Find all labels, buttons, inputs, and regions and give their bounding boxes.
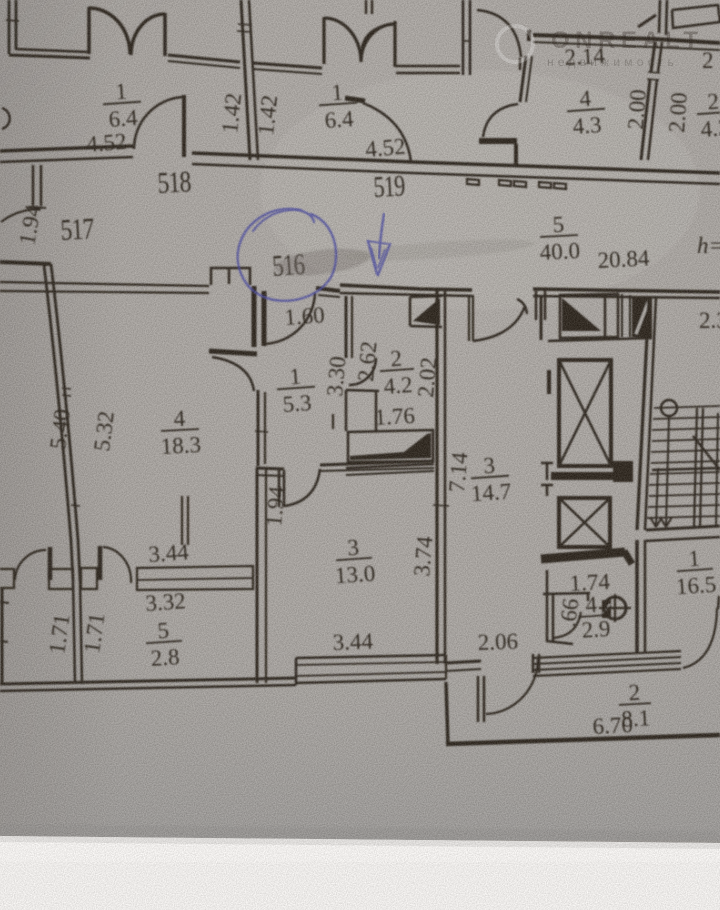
svg-text:h=2: h=2 [697,233,720,258]
svg-text:ONREALT: ONREALT [551,27,704,54]
svg-text:3.32: 3.32 [145,588,187,616]
svg-text:4: 4 [585,592,599,618]
svg-text:3.44: 3.44 [148,539,190,567]
svg-text:1.42: 1.42 [253,94,282,137]
svg-text:2: 2 [707,89,720,115]
svg-text:1.42: 1.42 [217,92,246,135]
svg-text:4: 4 [579,86,593,112]
svg-text:2.62: 2.62 [353,340,381,382]
svg-text:2.06: 2.06 [477,629,518,655]
svg-text:7.14: 7.14 [444,451,472,494]
svg-text:3.74: 3.74 [409,535,437,578]
svg-text:4.3: 4.3 [700,115,720,142]
svg-text:5.3: 5.3 [282,390,312,417]
svg-text:1: 1 [331,80,344,106]
svg-text:6.70: 6.70 [592,712,634,739]
svg-text:14.7: 14.7 [470,479,512,507]
svg-text:5.40: 5.40 [45,408,75,451]
svg-text:4.3: 4.3 [572,112,602,139]
svg-text:2: 2 [628,680,641,706]
svg-text:.66: .66 [555,597,583,629]
svg-text:2.00: 2.00 [664,91,692,133]
svg-text:1.76: 1.76 [374,403,416,430]
svg-text:1: 1 [688,546,701,572]
svg-text:20.84: 20.84 [597,245,650,273]
svg-text:1: 1 [289,364,302,390]
svg-text:2: 2 [702,48,714,73]
svg-text:2.00: 2.00 [623,88,651,130]
svg-text:2: 2 [390,346,403,372]
svg-text:2.02: 2.02 [413,356,441,398]
svg-text:5: 5 [552,212,565,238]
svg-text:недвижимость: недвижимость [547,55,678,69]
svg-text:517: 517 [60,212,95,247]
svg-text:40.0: 40.0 [539,238,581,265]
svg-text:1.60: 1.60 [284,302,326,330]
svg-text:518: 518 [157,165,192,200]
svg-text:6.4: 6.4 [324,106,355,133]
svg-text:2.8: 2.8 [150,644,180,671]
svg-text:18.3: 18.3 [160,432,202,459]
svg-text:4.52: 4.52 [85,129,127,157]
svg-text:2.9: 2.9 [581,616,611,643]
svg-text:3.44: 3.44 [332,629,374,655]
svg-text:1.94: 1.94 [261,485,289,528]
svg-text:4.2: 4.2 [383,372,413,399]
svg-text:5.32: 5.32 [89,410,119,453]
svg-text:1: 1 [115,79,128,105]
svg-text:4.52: 4.52 [364,134,406,162]
svg-text:519: 519 [373,169,406,204]
svg-text:3: 3 [347,535,360,561]
svg-text:2.3: 2.3 [699,308,720,333]
svg-text:3.30: 3.30 [322,355,350,397]
svg-text:3: 3 [483,453,496,479]
svg-text:13.0: 13.0 [334,561,376,589]
svg-text:5: 5 [157,618,170,644]
svg-text:16.5: 16.5 [675,572,717,600]
svg-text:4: 4 [173,406,186,432]
